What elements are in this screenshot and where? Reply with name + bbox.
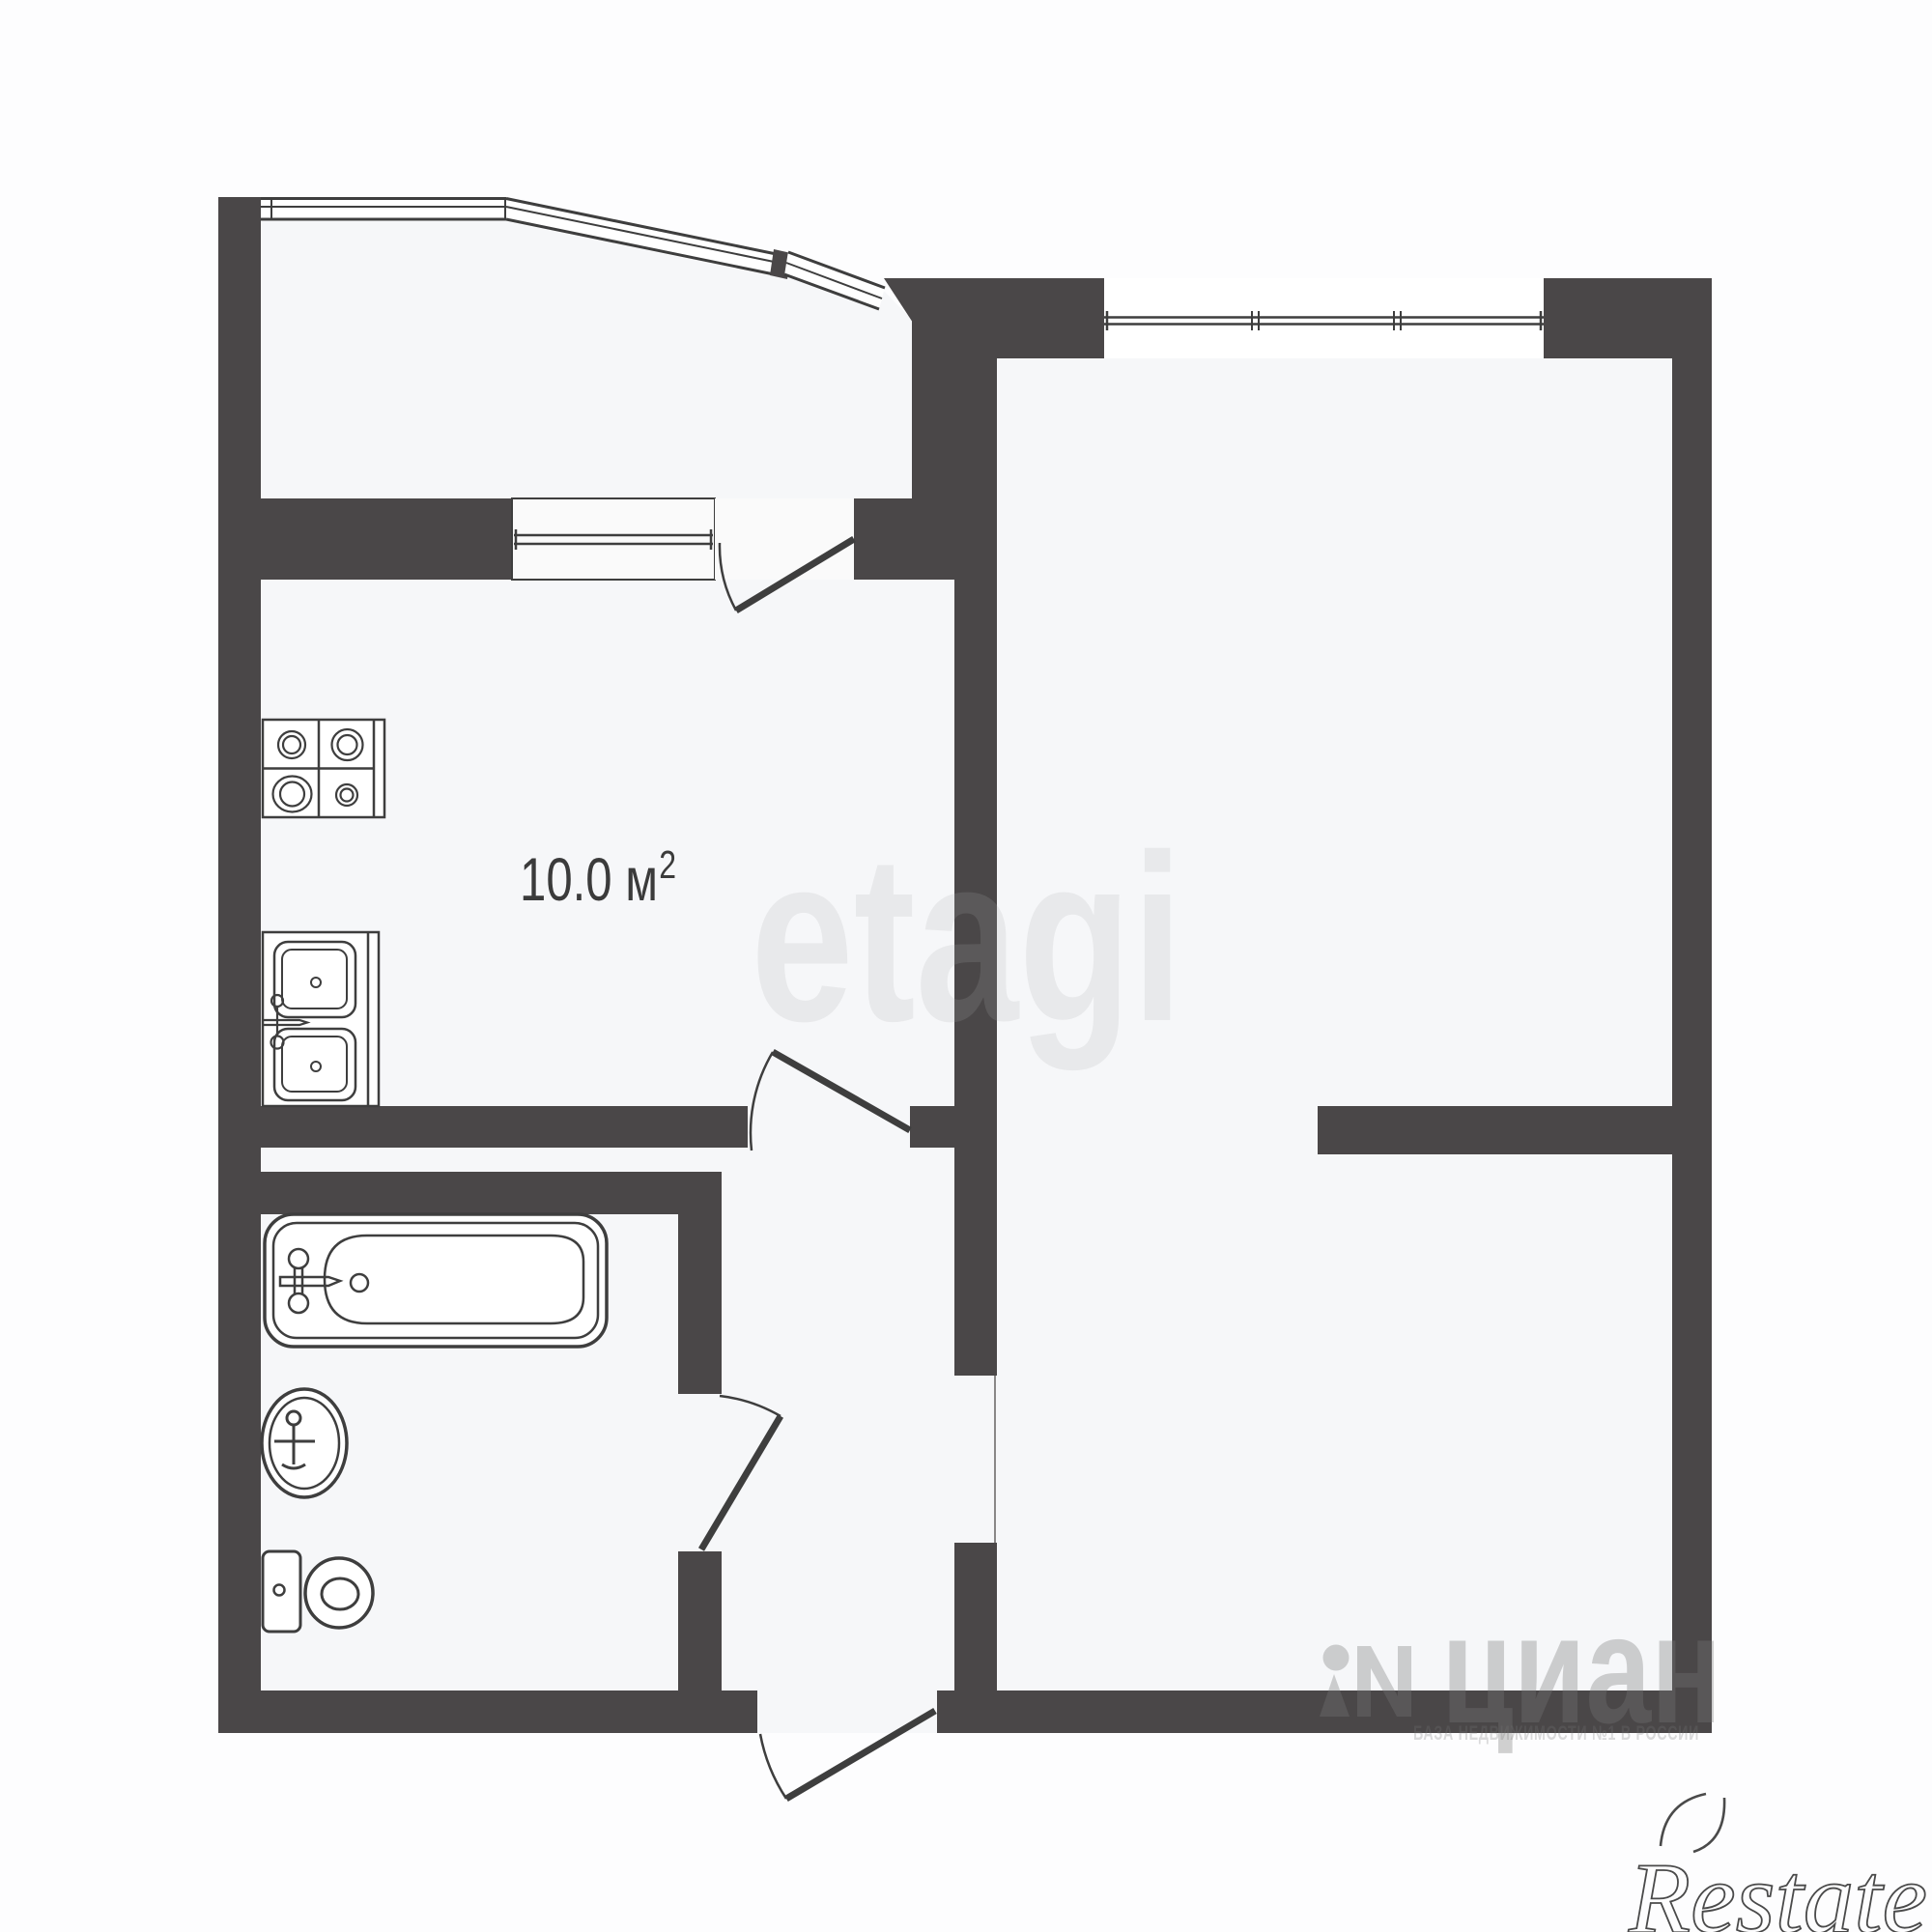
svg-text:Restate: Restate [1628, 1841, 1927, 1932]
svg-text:etagi: etagi [751, 805, 1183, 1070]
svg-text:БАЗА НЕДВИЖИМОСТИ №1 В РОССИИ: БАЗА НЕДВИЖИМОСТИ №1 В РОССИИ [1413, 1721, 1699, 1744]
svg-text:10.0 м: 10.0 м [520, 845, 658, 913]
svg-text:2: 2 [659, 842, 676, 887]
